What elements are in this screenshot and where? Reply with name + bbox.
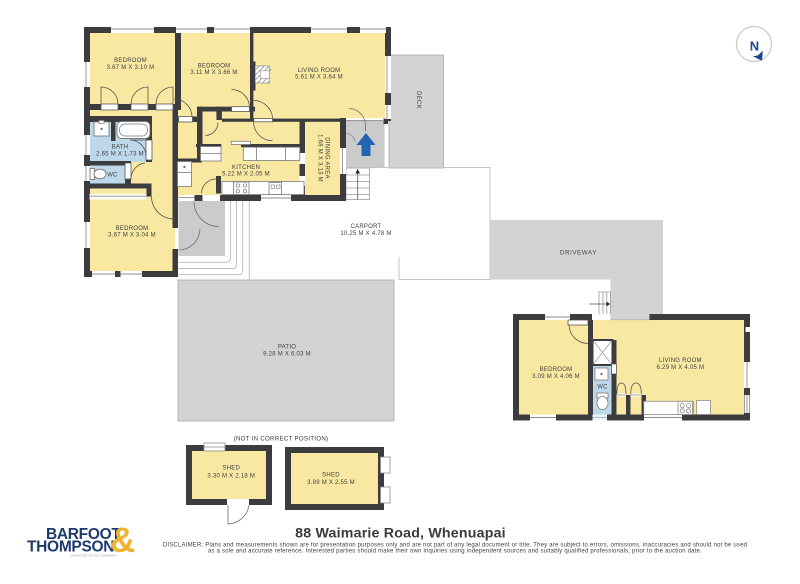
svg-text:SHED: SHED [222,466,240,472]
svg-text:SHED: SHED [322,473,340,479]
svg-text:KITCHEN: KITCHEN [232,165,260,171]
svg-text:3.11 M X 3.66 M: 3.11 M X 3.66 M [190,70,237,76]
svg-text:WC: WC [107,173,118,179]
svg-text:DINING AREA: DINING AREA [324,137,330,178]
svg-text:3.67 M X 3.04 M: 3.67 M X 3.04 M [108,233,156,239]
svg-text:88 Waimarie Road, Whenuapai: 88 Waimarie Road, Whenuapai [295,525,506,541]
svg-text:COMMITTED TO OUR COMMUNITY: COMMITTED TO OUR COMMUNITY [70,555,118,558]
svg-text:DECK: DECK [415,91,421,109]
svg-text:(NOT IN CORRECT POSITION): (NOT IN CORRECT POSITION) [234,436,329,443]
svg-text:BEDROOM: BEDROOM [198,64,231,70]
svg-text:10.25 M X 4.78 M: 10.25 M X 4.78 M [340,231,391,237]
svg-text:3.67 M X 3.10 M: 3.67 M X 3.10 M [107,65,155,71]
svg-text:BEDROOM: BEDROOM [116,226,149,232]
svg-text:3.09 M X 4.06 M: 3.09 M X 4.06 M [532,374,580,380]
svg-text:3.30 M X 2.18 M: 3.30 M X 2.18 M [207,473,255,479]
svg-text:as a sole and accurate referen: as a sole and accurate reference. Intere… [208,548,702,554]
svg-text:3.89 M X 2.55 M: 3.89 M X 2.55 M [307,480,355,486]
svg-text:5.22 M X 2.05 M: 5.22 M X 2.05 M [222,171,270,177]
svg-text:6.29 M X 4.05 M: 6.29 M X 4.05 M [657,365,705,371]
svg-text:BEDROOM: BEDROOM [540,367,573,373]
svg-text:LIVING ROOM: LIVING ROOM [298,68,341,74]
svg-text:2.65 M X 1.73 M: 2.65 M X 1.73 M [96,152,144,158]
svg-text:N: N [750,39,759,54]
svg-text:CARPORT: CARPORT [351,224,382,230]
svg-text:WC: WC [597,384,608,390]
svg-text:BATH: BATH [112,145,129,151]
svg-text:9.28 M X 6.03 M: 9.28 M X 6.03 M [263,351,311,357]
svg-text:PATIO: PATIO [278,344,296,350]
svg-text:5.61 M X 3.64 M: 5.61 M X 3.64 M [295,75,343,81]
svg-text:THOMPSON: THOMPSON [27,539,114,556]
svg-text:DRIVEWAY: DRIVEWAY [560,251,597,257]
svg-text:1.68 M X 3.13 M: 1.68 M X 3.13 M [317,134,323,182]
svg-text:BEDROOM: BEDROOM [114,58,147,64]
svg-text:LIVING ROOM: LIVING ROOM [659,358,702,364]
